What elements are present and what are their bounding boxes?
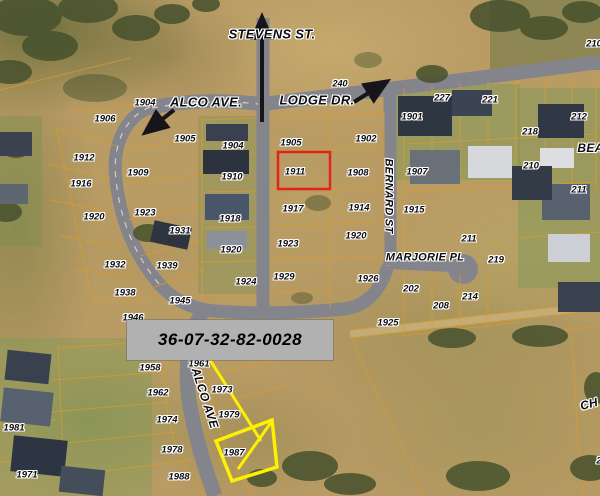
selection-annotation: [210, 360, 277, 481]
parcel-id-box: 36-07-32-82-0028: [127, 320, 333, 360]
map-overlay: [0, 0, 600, 496]
gis-parcel-map[interactable]: STEVENS ST.ALCO AVE.LODGE DR.BERNARD STM…: [0, 0, 600, 496]
highlight-rectangle: [278, 152, 330, 189]
parcel-id-text: 36-07-32-82-0028: [158, 330, 302, 350]
